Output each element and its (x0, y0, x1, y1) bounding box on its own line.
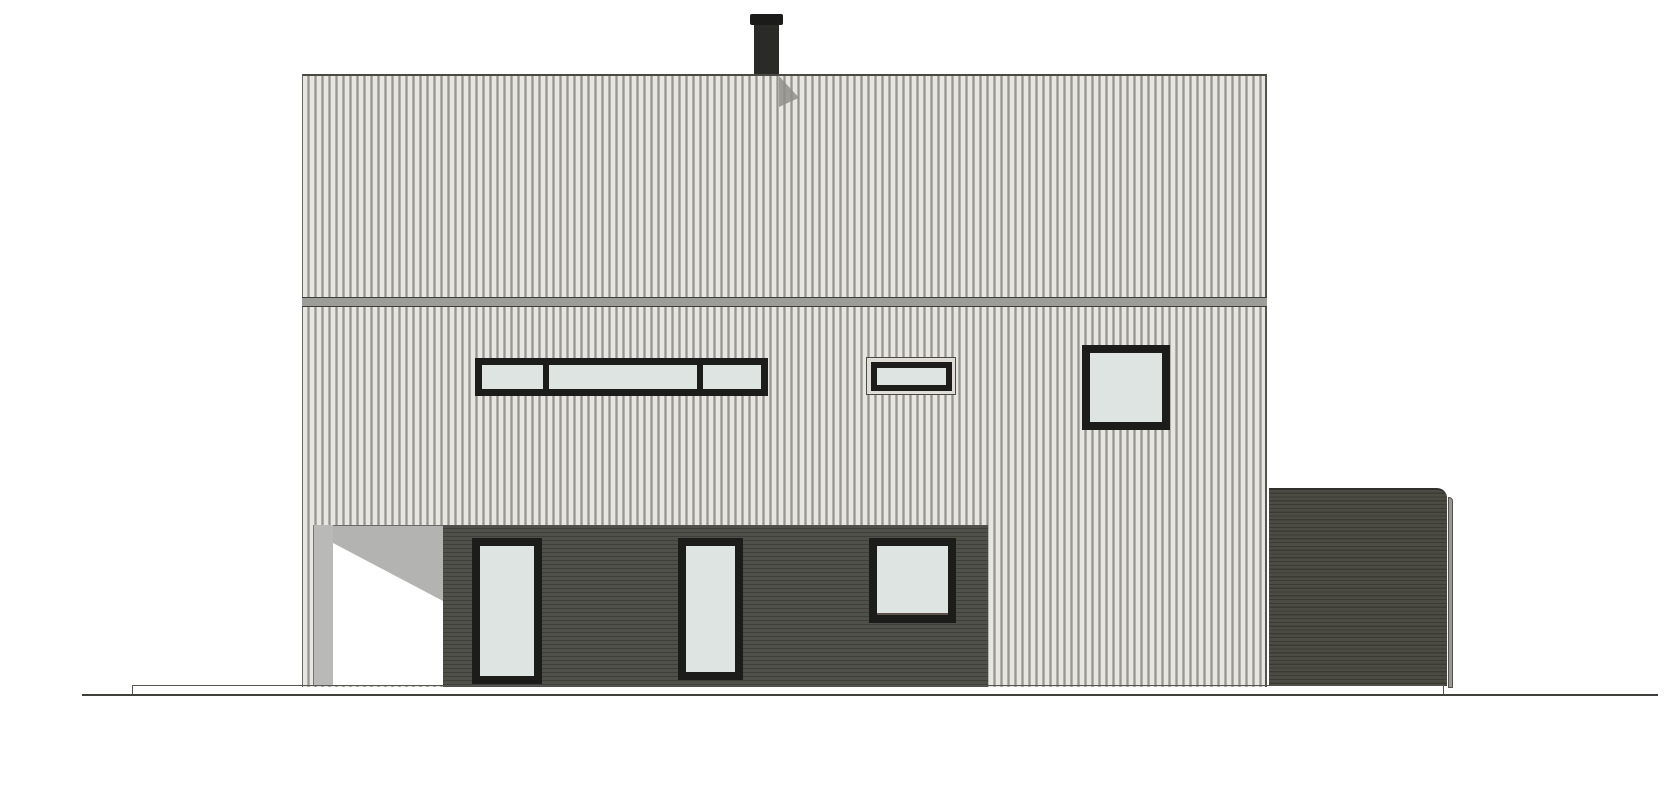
small-window-frame (871, 362, 952, 391)
eaves-band (302, 297, 1267, 307)
annex-volume (1269, 488, 1447, 686)
carport-opening (313, 525, 443, 686)
glazed-door-2-pane (686, 546, 735, 672)
upper-facade-siding (302, 74, 1267, 297)
strip-window-pane-1 (482, 365, 543, 389)
glazed-door-2 (678, 538, 743, 680)
carport-jamb (313, 525, 333, 686)
glazed-door-1 (472, 538, 542, 684)
square-window-lower-pane (877, 546, 948, 615)
square-window-lower (869, 538, 956, 623)
strip-window-pane-3 (703, 365, 761, 389)
foundation-line (133, 685, 1444, 686)
carport-shadow-triangle (333, 543, 443, 601)
annex-corner-trim (1448, 497, 1453, 688)
small-window-pane (877, 368, 946, 385)
strip-window-pane-2 (549, 365, 698, 389)
square-window-upper (1082, 345, 1170, 430)
strip-window (475, 358, 768, 396)
chimney-cap (750, 14, 783, 25)
glazed-door-1-pane (480, 546, 534, 676)
square-window-upper-pane (1090, 353, 1162, 422)
elevation-drawing (0, 0, 1670, 800)
small-window (866, 357, 956, 395)
ground-line (82, 694, 1658, 696)
